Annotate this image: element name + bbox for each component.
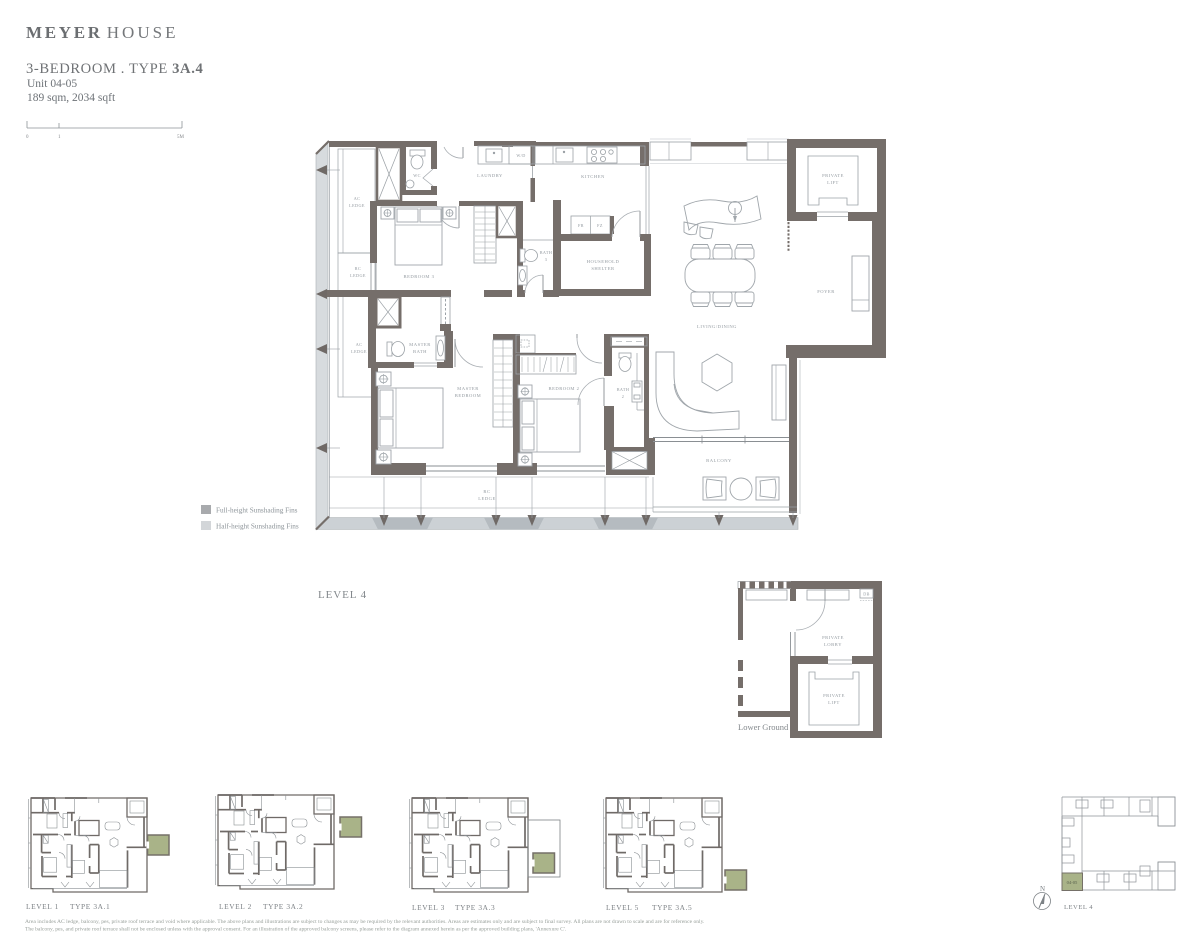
svg-text:LIVING/DINING: LIVING/DINING: [697, 324, 737, 329]
svg-text:FZ: FZ: [597, 223, 603, 228]
svg-text:The balcony, pes, and private: The balcony, pes, and private roof terra…: [25, 926, 567, 933]
svg-text:189 sqm, 2034 sqft: 189 sqm, 2034 sqft: [27, 92, 116, 104]
svg-text:LEDGE: LEDGE: [478, 496, 496, 501]
svg-text:N: N: [1040, 885, 1045, 893]
svg-text:BATH: BATH: [413, 349, 427, 354]
svg-text:Unit 04-05: Unit 04-05: [27, 78, 77, 90]
svg-text:TYPE 3A.1: TYPE 3A.1: [70, 902, 110, 911]
svg-text:3-BEDROOM . TYPE 3A.4: 3-BEDROOM . TYPE 3A.4: [26, 61, 203, 77]
svg-text:PRIVATE: PRIVATE: [822, 635, 844, 640]
svg-text:3: 3: [545, 257, 548, 262]
svg-text:TYPE 3A.3: TYPE 3A.3: [455, 903, 495, 912]
svg-text:LEVEL 2: LEVEL 2: [219, 902, 252, 911]
svg-text:LEVEL 4: LEVEL 4: [318, 589, 367, 601]
svg-text:AC: AC: [354, 196, 361, 201]
svg-text:2: 2: [622, 394, 625, 399]
svg-text:5M: 5M: [177, 135, 185, 140]
svg-text:LEVEL 5: LEVEL 5: [606, 903, 639, 912]
svg-text:FR: FR: [578, 223, 584, 228]
svg-text:MASTER: MASTER: [457, 386, 479, 391]
svg-text:KITCHEN: KITCHEN: [581, 174, 605, 179]
svg-text:Full-height Sunshading Fins: Full-height Sunshading Fins: [216, 507, 298, 515]
svg-text:RC: RC: [483, 489, 490, 494]
svg-text:LEVEL 4: LEVEL 4: [1064, 904, 1093, 911]
svg-text:RC: RC: [355, 266, 361, 271]
svg-text:BEDROOM 3: BEDROOM 3: [404, 274, 435, 279]
svg-text:TYPE 3A.2: TYPE 3A.2: [263, 902, 303, 911]
svg-text:LEDGE: LEDGE: [351, 349, 367, 354]
svg-text:MASTER: MASTER: [409, 342, 431, 347]
svg-text:BALCONY: BALCONY: [706, 458, 732, 463]
svg-text:04-05: 04-05: [1067, 880, 1078, 885]
svg-text:BATH: BATH: [540, 250, 553, 255]
svg-text:Lower Ground: Lower Ground: [738, 722, 789, 732]
svg-text:LEVEL 1: LEVEL 1: [26, 902, 59, 911]
svg-text:TYPE 3A.5: TYPE 3A.5: [652, 903, 692, 912]
svg-text:PRIVATE: PRIVATE: [822, 173, 844, 178]
svg-text:BATH: BATH: [617, 387, 630, 392]
svg-text:BEDROOM: BEDROOM: [455, 393, 481, 398]
svg-text:DB: DB: [863, 592, 870, 597]
svg-text:MEYERHOUSE: MEYERHOUSE: [26, 23, 178, 42]
svg-text:LEDGE: LEDGE: [349, 203, 365, 208]
svg-text:SHELTER: SHELTER: [591, 266, 615, 271]
svg-text:WC: WC: [413, 173, 421, 178]
svg-text:PRIVATE: PRIVATE: [823, 693, 845, 698]
svg-text:FOYER: FOYER: [817, 289, 835, 294]
svg-text:LIFT: LIFT: [827, 180, 839, 185]
svg-text:LEDGE: LEDGE: [350, 273, 366, 278]
svg-text:Half-height Sunshading Fins: Half-height Sunshading Fins: [216, 523, 299, 531]
svg-text:Area includes AC ledge, balcon: Area includes AC ledge, balcony, pes, pr…: [25, 918, 705, 925]
svg-text:AC: AC: [356, 342, 363, 347]
svg-text:LIFT: LIFT: [828, 700, 840, 705]
svg-text:HOUSEHOLD: HOUSEHOLD: [587, 259, 620, 264]
svg-text:BEDROOM 2: BEDROOM 2: [549, 386, 580, 391]
svg-text:LAUNDRY: LAUNDRY: [477, 173, 503, 178]
svg-text:LOBBY: LOBBY: [824, 642, 842, 647]
svg-text:W/D: W/D: [516, 153, 525, 158]
svg-text:LEVEL 3: LEVEL 3: [412, 903, 445, 912]
